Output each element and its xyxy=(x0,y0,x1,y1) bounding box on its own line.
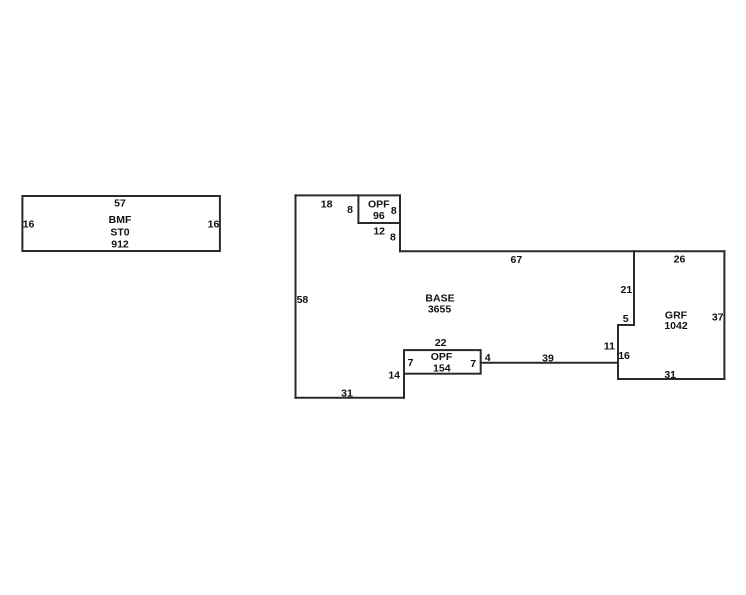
svg-text:21: 21 xyxy=(621,284,633,296)
svg-text:58: 58 xyxy=(297,294,309,306)
svg-text:154: 154 xyxy=(433,363,451,375)
svg-text:37: 37 xyxy=(712,312,724,324)
svg-text:7: 7 xyxy=(408,357,414,369)
svg-text:57: 57 xyxy=(114,198,126,210)
svg-text:912: 912 xyxy=(111,238,129,250)
svg-text:67: 67 xyxy=(511,254,523,266)
svg-text:16: 16 xyxy=(618,350,630,362)
svg-text:16: 16 xyxy=(208,219,220,231)
svg-text:OPF: OPF xyxy=(368,199,390,211)
svg-text:8: 8 xyxy=(391,205,397,217)
svg-text:OPF: OPF xyxy=(431,351,453,363)
svg-text:11: 11 xyxy=(604,341,615,353)
svg-text:4: 4 xyxy=(485,352,491,364)
svg-text:5: 5 xyxy=(623,313,629,325)
svg-text:8: 8 xyxy=(347,204,353,216)
svg-text:22: 22 xyxy=(435,337,447,349)
svg-text:26: 26 xyxy=(674,254,686,266)
svg-text:1042: 1042 xyxy=(664,320,688,332)
svg-text:18: 18 xyxy=(321,199,333,211)
svg-text:31: 31 xyxy=(664,369,676,381)
svg-text:16: 16 xyxy=(23,219,35,231)
svg-text:12: 12 xyxy=(373,226,385,238)
svg-text:31: 31 xyxy=(341,387,353,399)
svg-text:3655: 3655 xyxy=(428,304,452,316)
svg-text:96: 96 xyxy=(373,210,385,222)
svg-text:ST0: ST0 xyxy=(110,226,129,238)
svg-text:14: 14 xyxy=(388,370,400,382)
svg-text:8: 8 xyxy=(390,232,396,244)
svg-text:39: 39 xyxy=(542,353,554,365)
svg-text:7: 7 xyxy=(470,358,476,370)
svg-text:BMF: BMF xyxy=(109,214,132,226)
